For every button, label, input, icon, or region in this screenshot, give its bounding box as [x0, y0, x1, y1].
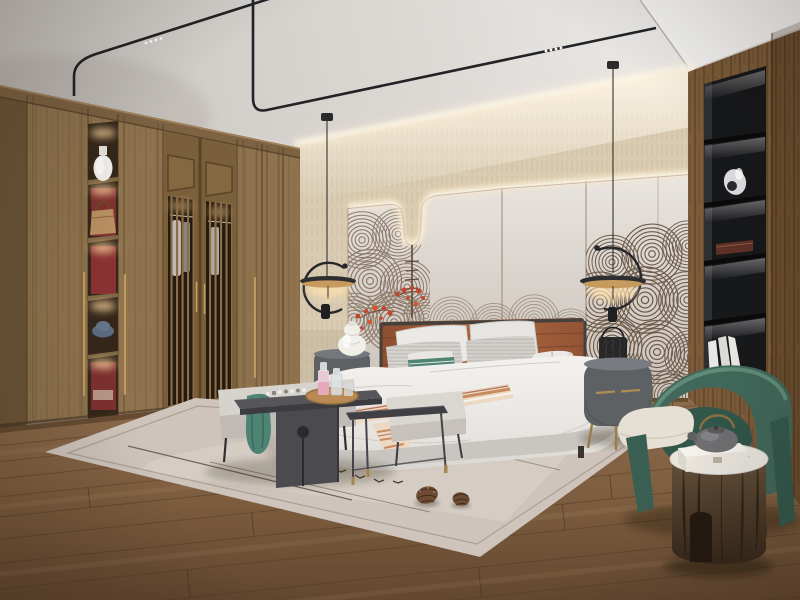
scene-svg	[0, 0, 800, 600]
vignette	[0, 0, 800, 600]
bedroom-photo	[0, 0, 800, 600]
